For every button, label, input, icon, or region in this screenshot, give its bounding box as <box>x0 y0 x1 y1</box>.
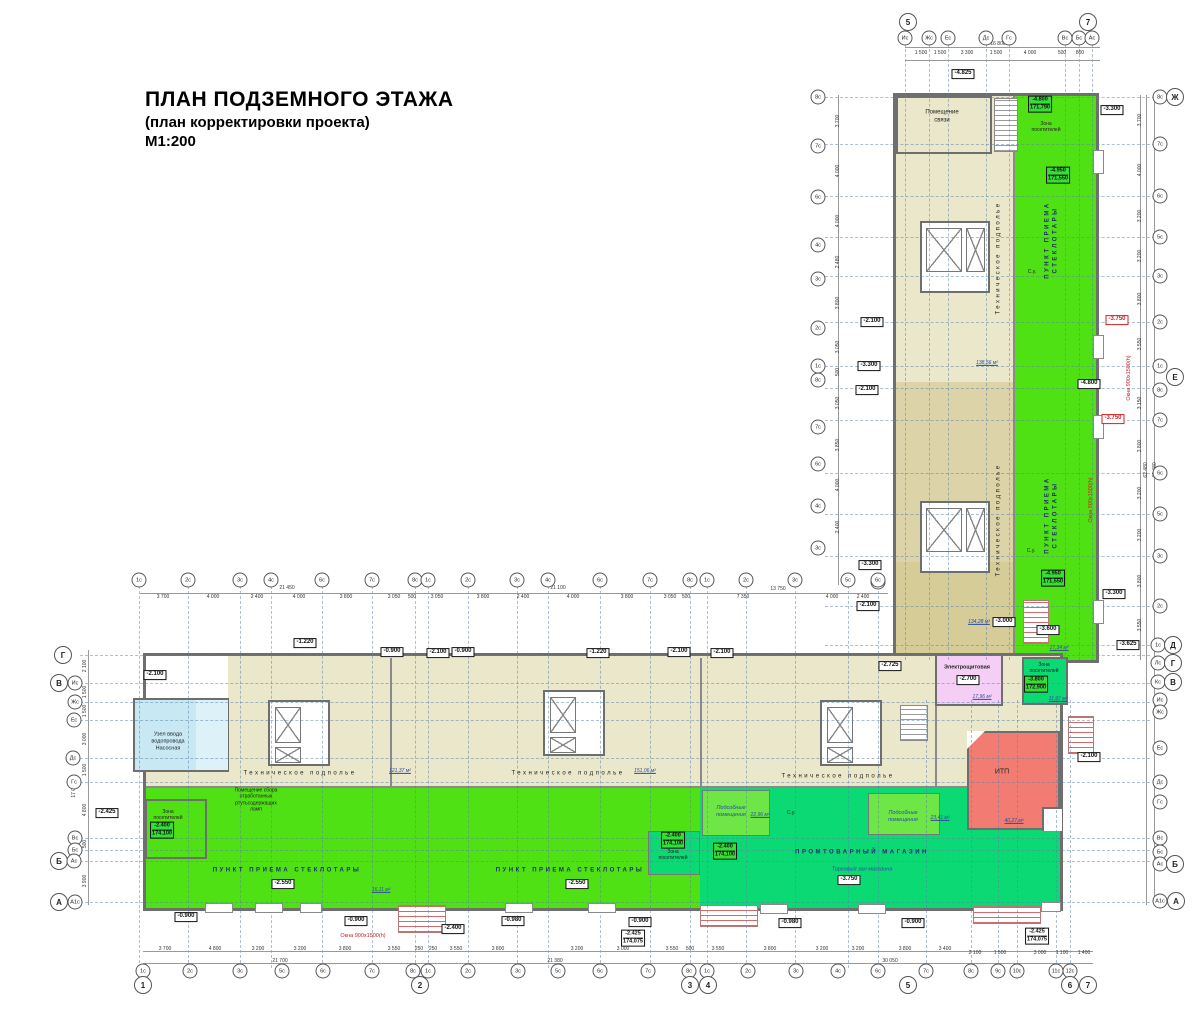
grid-bubble-Ас: Ас <box>1085 31 1100 46</box>
room-label: 11,97 м² <box>1049 696 1068 702</box>
dimension-text: 2 100 <box>969 950 982 956</box>
grid-bubble-Ес: Ес <box>941 31 956 46</box>
grid-bubble-Дс: Дс <box>66 751 81 766</box>
grid-bubble-1: 1 <box>134 976 152 994</box>
grid-axis-line <box>240 586 241 968</box>
grid-bubble-6с: 6с <box>871 573 886 588</box>
elevation-note: -2.700 <box>956 675 979 685</box>
elevation-value-box: -4.800171,790 <box>1028 96 1052 113</box>
grid-bubble-4: 4 <box>699 976 717 994</box>
room-label: 40,27 м² <box>1005 818 1024 824</box>
elevation-note: -2.100 <box>667 647 690 657</box>
grid-bubble-1с: 1с <box>700 573 715 588</box>
dimension-text: 3 800 <box>621 594 634 600</box>
dimension-text: 3 550 <box>1137 619 1143 632</box>
grid-axis-line <box>1017 700 1018 968</box>
elevation-note: -4.825 <box>951 69 974 79</box>
dimension-text: 2 480 <box>835 256 841 269</box>
elevation-note: -2.100 <box>710 648 733 658</box>
grid-bubble-Вс: Вс <box>1153 831 1168 846</box>
grid-axis-line <box>80 838 1150 839</box>
grid-bubble-8с: 8с <box>1153 383 1168 398</box>
elevator-cell <box>275 707 301 743</box>
room-label: Техническое подполье <box>243 770 356 778</box>
grid-bubble-5: 5 <box>899 976 917 994</box>
dimension-text: 1 500 <box>82 686 88 699</box>
grid-bubble-Жс: Жс <box>1153 705 1168 720</box>
window-opening <box>300 903 322 913</box>
room-label: 23,41 м² <box>931 815 950 821</box>
elevation-note: -2.550 <box>565 879 588 889</box>
elevation-note: -3.750 <box>837 875 860 885</box>
grid-axis-line <box>690 586 691 968</box>
dimension-text: 1 500 <box>82 764 88 777</box>
grid-axis-line <box>80 861 1150 862</box>
elevation-value-bottom: 171,550 <box>1043 578 1063 586</box>
elevation-note: -2.400 <box>441 924 464 934</box>
grid-axis-line <box>825 556 1155 557</box>
dimension-text: 3 800 <box>1137 575 1143 588</box>
grid-bubble-Е: Е <box>1166 368 1184 386</box>
grid-bubble-6с: 6с <box>1153 466 1168 481</box>
grid-bubble-7: 7 <box>1079 976 1097 994</box>
grid-axis-line <box>825 237 1155 238</box>
dimension-line <box>905 47 1100 48</box>
hwing-partition-band <box>146 786 1060 788</box>
elevation-note: -3.750 <box>1101 414 1124 424</box>
grid-axis-line <box>80 758 1150 759</box>
dimension-text: 3 800 <box>339 946 352 952</box>
window-opening <box>760 904 788 914</box>
dimension-text: 3 800 <box>899 946 912 952</box>
grid-bubble-2с: 2с <box>741 964 756 979</box>
grid-bubble-2с: 2с <box>461 964 476 979</box>
grid-axis-line <box>825 196 1155 197</box>
grid-bubble-Гс: Гс <box>67 775 82 790</box>
grid-bubble-В: В <box>1164 673 1182 691</box>
grid-axis-line <box>905 44 906 660</box>
grid-bubble-8с: 8с <box>811 90 826 105</box>
room-label: Помещение связи <box>925 110 958 125</box>
grid-bubble-Дс: Дс <box>1153 775 1168 790</box>
elevation-note: -0.900 <box>174 912 197 922</box>
grid-bubble-7с: 7с <box>643 573 658 588</box>
room-label: Зона посетителей <box>1029 662 1058 675</box>
dimension-text: 3 000 <box>82 733 88 746</box>
grid-axis-line <box>746 586 747 968</box>
dimension-text: 500 <box>682 594 690 600</box>
grid-axis-line <box>948 44 949 660</box>
elevation-value-bottom: 174,100 <box>152 830 172 838</box>
dimension-text: 3 200 <box>1137 529 1143 542</box>
grid-bubble-Ас: Ас <box>67 854 82 869</box>
grid-bubble-2с: 2с <box>739 573 754 588</box>
stairs-entrance-3 <box>973 906 1041 924</box>
room-label: Техническое подполье <box>781 773 894 781</box>
dimension-text: 500 <box>82 840 88 848</box>
grid-bubble-3с: 3с <box>510 573 525 588</box>
dimension-text: 4 000 <box>207 594 220 600</box>
hwing-partition-2 <box>700 658 702 786</box>
dimension-text: 3 050 <box>835 397 841 410</box>
elevation-value-top: -2.425 <box>1027 929 1047 936</box>
grid-axis-line <box>80 720 1150 721</box>
room-label: С.у. <box>787 810 795 816</box>
room-label: 134,28 м² <box>968 619 990 625</box>
dimension-text: 3 200 <box>1137 487 1143 500</box>
dimension-text: 800 <box>1076 50 1084 56</box>
elevation-note: -2.550 <box>271 879 294 889</box>
elevation-value-top: -2.400 <box>715 844 735 851</box>
grid-axis-line <box>1079 44 1080 660</box>
grid-axis-line <box>825 144 1155 145</box>
dimension-text: 4 000 <box>1024 50 1037 56</box>
window-note: Окна 900х1500(h) <box>1088 477 1094 522</box>
grid-axis-line <box>825 97 1155 98</box>
elevation-value-top: -4.950 <box>1043 571 1063 578</box>
room-label: Подсобные помещения <box>716 805 746 819</box>
grid-bubble-7: 7 <box>1079 13 1097 31</box>
room-label: Техническое подполье <box>995 201 1003 314</box>
grid-bubble-Д: Д <box>1164 636 1182 654</box>
grid-axis-line <box>971 700 972 968</box>
dimension-text: 250 <box>429 946 437 952</box>
dimension-text: 3 700 <box>1137 114 1143 127</box>
elevation-note: -2.100 <box>856 601 879 611</box>
room-label: 17,96 м² <box>973 694 992 700</box>
dimension-text: 3 400 <box>939 946 952 952</box>
elevation-note: -3.300 <box>858 560 881 570</box>
grid-axis-line <box>1056 700 1057 968</box>
grid-axis-line <box>415 586 416 968</box>
dimension-text: 250 <box>415 946 423 952</box>
elevation-value-bottom: 171,550 <box>1048 175 1068 183</box>
grid-bubble-3с: 3с <box>788 573 803 588</box>
dimension-text: 3 200 <box>252 946 265 952</box>
grid-bubble-3с: 3с <box>1153 549 1168 564</box>
room-label: 16,11 м² <box>372 887 391 893</box>
grid-bubble-7с: 7с <box>365 573 380 588</box>
stairs-entrance-2 <box>700 905 758 927</box>
grid-bubble-5с: 5с <box>551 964 566 979</box>
elevation-value-bottom: 171,790 <box>1030 104 1050 112</box>
room-label: Электрощитовая <box>944 665 990 672</box>
grid-axis-line <box>188 586 189 968</box>
elevation-value-box: -2.400174,100 <box>150 822 174 839</box>
grid-bubble-Гс: Гс <box>1002 31 1017 46</box>
dimension-text: 3 050 <box>664 594 677 600</box>
dimension-text: 4 000 <box>293 594 306 600</box>
room-label: Узел ввода водопровода Насосная <box>151 732 184 753</box>
dimension-text: 4 000 <box>1137 164 1143 177</box>
grid-bubble-10с: 10с <box>1010 964 1025 979</box>
dimension-text: 3 550 <box>1137 338 1143 351</box>
elevation-note: -3.300 <box>1100 105 1123 115</box>
grid-bubble-5с: 5с <box>1153 507 1168 522</box>
grid-bubble-А1с: А1с <box>1153 894 1168 909</box>
dimension-text: 3 550 <box>712 946 725 952</box>
title-line1: ПЛАН ПОДЗЕМНОГО ЭТАЖА <box>145 88 454 112</box>
dimension-text: 4 000 <box>826 594 839 600</box>
room-itp-step <box>1042 807 1062 831</box>
dimension-text: 3 050 <box>835 341 841 354</box>
dimension-text: 2 400 <box>857 594 870 600</box>
elevator-cell <box>275 747 301 763</box>
dimension-text: 62 480 <box>1143 462 1149 477</box>
elevator-cell <box>827 707 853 743</box>
grid-bubble-3с: 3с <box>1153 269 1168 284</box>
dimension-text: 1 400 <box>1078 950 1091 956</box>
window-opening <box>1093 150 1104 174</box>
grid-bubble-Ес: Ес <box>1153 741 1168 756</box>
grid-bubble-Дс: Дс <box>979 31 994 46</box>
grid-bubble-5: 5 <box>899 13 917 31</box>
grid-bubble-6с: 6с <box>811 457 826 472</box>
grid-bubble-Гс: Гс <box>1153 795 1168 810</box>
dimension-text: 3 700 <box>835 115 841 128</box>
grid-bubble-3с: 3с <box>789 964 804 979</box>
grid-bubble-4с: 4с <box>264 573 279 588</box>
elevation-note: -0.980 <box>778 918 801 928</box>
elevation-value-box: -3.800172,900 <box>1024 676 1048 693</box>
elevation-note: -2.100 <box>143 670 166 680</box>
grid-axis-line <box>80 702 1150 703</box>
elevation-note: -2.725 <box>878 661 901 671</box>
dimension-text: 2 100 <box>82 660 88 673</box>
room-label: 17,34 м² <box>1050 645 1069 651</box>
dimension-text: 3 200 <box>294 946 307 952</box>
grid-bubble-7с: 7с <box>641 964 656 979</box>
grid-axis-line <box>1009 44 1010 660</box>
dimension-text: 3 200 <box>852 946 865 952</box>
elevation-value-bottom: 174,075 <box>623 938 643 946</box>
grid-bubble-Вс: Вс <box>1058 31 1073 46</box>
hwing-partition-3 <box>935 706 937 786</box>
dimension-text: 3 550 <box>666 946 679 952</box>
elevation-value-top: -2.400 <box>152 823 172 830</box>
hwing-partition-1 <box>390 658 392 786</box>
grid-bubble-3с: 3с <box>233 964 248 979</box>
grid-bubble-8с: 8с <box>811 373 826 388</box>
title-line2: (план корректировки проекта) <box>145 114 454 131</box>
grid-bubble-7с: 7с <box>1153 137 1168 152</box>
grid-axis-line <box>1065 44 1066 660</box>
grid-axis-line <box>998 700 999 968</box>
window-opening <box>1093 335 1104 359</box>
elevator-cell <box>550 737 576 753</box>
grid-axis-line <box>1070 700 1071 968</box>
grid-bubble-2с: 2с <box>183 964 198 979</box>
room-water-inlet-annex <box>196 700 228 770</box>
dimension-text: 21 450 <box>279 585 294 591</box>
grid-bubble-Б: Б <box>1166 855 1184 873</box>
grid-bubble-4с: 4с <box>831 964 846 979</box>
grid-bubble-6с: 6с <box>593 573 608 588</box>
grid-bubble-6с: 6с <box>1153 189 1168 204</box>
room-label: Зона посетителей <box>658 849 687 862</box>
grid-bubble-1с: 1с <box>1153 359 1168 374</box>
elevation-note: -4.800 <box>1077 379 1100 389</box>
elevation-note: -3.300 <box>1102 589 1125 599</box>
grid-bubble-Ж: Ж <box>1166 88 1184 106</box>
dimension-text: 3 800 <box>492 946 505 952</box>
window-opening <box>858 904 886 914</box>
grid-bubble-Ис: Ис <box>68 676 83 691</box>
grid-bubble-5с: 5с <box>841 573 856 588</box>
dimension-text: 500 <box>686 946 694 952</box>
dimension-text: 4 800 <box>209 946 222 952</box>
dimension-text: 3 550 <box>450 946 463 952</box>
dimension-text: 4 000 <box>567 594 580 600</box>
grid-bubble-7с: 7с <box>365 964 380 979</box>
elevation-note: -2.100 <box>1077 752 1100 762</box>
room-label: Техническое подполье <box>995 463 1003 576</box>
dimension-text: 3 550 <box>388 946 401 952</box>
elevation-value-box: -4.950171,550 <box>1041 570 1065 587</box>
grid-bubble-Б: Б <box>50 852 68 870</box>
room-label: С.у. <box>1027 548 1035 554</box>
grid-axis-line <box>650 586 651 968</box>
room-label: ИТП <box>995 769 1009 778</box>
elevation-note: -0.900 <box>344 916 367 926</box>
elevation-value-bottom: 174,100 <box>663 840 683 848</box>
room-label: ПУНКТ ПРИЕМА СТЕКЛОТАРЫ <box>213 867 362 875</box>
grid-bubble-4с: 4с <box>811 499 826 514</box>
dimension-text: 3 800 <box>477 594 490 600</box>
dimension-text: 3 200 <box>1137 210 1143 223</box>
dimension-text: 3 700 <box>157 594 170 600</box>
elevation-value-top: -2.425 <box>623 931 643 938</box>
dimension-text: 4 800 <box>82 804 88 817</box>
elevation-value-bottom: 174,100 <box>715 851 735 859</box>
dimension-text: 1 500 <box>915 50 928 56</box>
window-note: Окна 900х1500(h) <box>1126 355 1132 400</box>
elevation-value-box: -2.400174,100 <box>661 832 685 849</box>
grid-bubble-2с: 2с <box>1153 315 1168 330</box>
room-label: 151,06 м² <box>634 768 656 774</box>
grid-bubble-А1с: А1с <box>68 895 83 910</box>
elevation-value-box: -2.425174,075 <box>1025 928 1049 945</box>
elevation-note: -0.980 <box>501 916 524 926</box>
grid-axis-line <box>428 586 429 968</box>
floor-plan: ПЛАН ПОДЗЕМНОГО ЭТАЖА (план корректировк… <box>0 0 1200 1009</box>
grid-axis-line <box>825 514 1155 515</box>
elevation-note: -0.900 <box>901 918 924 928</box>
room-label: Подсобные помещения <box>888 810 918 824</box>
dimension-text: 4 000 <box>835 165 841 178</box>
elevation-note: -0.900 <box>380 647 403 657</box>
room-label: Техническое подполье <box>511 770 624 778</box>
grid-bubble-Ис: Ис <box>898 31 913 46</box>
dimension-text: 7 350 <box>737 594 750 600</box>
grid-bubble-5с: 5с <box>275 964 290 979</box>
grid-axis-line <box>707 586 708 968</box>
elevation-note: -3.600 <box>1036 625 1059 635</box>
elevation-note: -2.100 <box>426 648 449 658</box>
grid-bubble-3с: 3с <box>811 272 826 287</box>
room-label: С.у. <box>1028 269 1036 275</box>
room-label: Зона посетителей <box>1031 121 1060 134</box>
dimension-text: 3 800 <box>835 297 841 310</box>
elevator-cell <box>926 228 962 272</box>
elevation-note: -3.750 <box>1105 315 1128 325</box>
dimension-text: 3 800 <box>764 946 777 952</box>
elevation-value-bottom: 172,900 <box>1026 684 1046 692</box>
grid-bubble-8с: 8с <box>964 964 979 979</box>
grid-bubble-8с: 8с <box>683 573 698 588</box>
dimension-text: 30 050 <box>882 958 897 964</box>
room-label: Зона посетителей <box>153 809 182 822</box>
dimension-text: 3 150 <box>1137 397 1143 410</box>
dimension-text: 2 400 <box>835 521 841 534</box>
room-label: ПУНКТ ПРИЕМА СТЕКЛОТАРЫ <box>496 867 645 875</box>
dimension-text: 3 050 <box>388 594 401 600</box>
stairs-entrance-1 <box>398 905 446 933</box>
window-note: Окна 900х1500(h) <box>340 933 385 939</box>
elevation-note: -3.300 <box>857 361 880 371</box>
elevation-value-box: -2.425174,075 <box>621 930 645 947</box>
grid-bubble-4с: 4с <box>811 238 826 253</box>
room-communications <box>896 96 992 154</box>
grid-axis-line <box>825 473 1155 474</box>
grid-bubble-3с: 3с <box>811 541 826 556</box>
dimension-text: 2 400 <box>251 594 264 600</box>
grid-bubble-6с: 6с <box>316 964 331 979</box>
grid-axis-line <box>825 645 1155 646</box>
room-label: ПУНКТ ПРИЕМА СТЕКЛОТАРЫ <box>1045 476 1060 553</box>
elevator-cell <box>966 228 985 272</box>
grid-axis-line <box>80 655 1150 656</box>
grid-bubble-2с: 2с <box>461 573 476 588</box>
grid-bubble-9с: 9с <box>991 964 1006 979</box>
grid-bubble-1с: 1с <box>132 573 147 588</box>
dimension-text: 3 850 <box>835 439 841 452</box>
window-opening <box>1093 600 1104 624</box>
room-label: 138,56 м² <box>976 360 998 366</box>
grid-axis-line <box>825 276 1155 277</box>
grid-bubble-3с: 3с <box>511 964 526 979</box>
window-opening <box>1041 902 1061 912</box>
room-label: ПРОМТОВАРНЫЙ МАГАЗИН <box>795 849 929 857</box>
grid-bubble-7с: 7с <box>919 964 934 979</box>
grid-axis-line <box>372 586 373 968</box>
grid-bubble-7с: 7с <box>811 139 826 154</box>
grid-bubble-1с: 1с <box>811 359 826 374</box>
grid-axis-line <box>80 850 1150 851</box>
dimension-text: 3 000 <box>617 946 630 952</box>
window-opening <box>505 903 533 913</box>
dimension-line <box>905 60 1100 61</box>
grid-bubble-3: 3 <box>681 976 699 994</box>
dimension-line <box>1146 95 1147 905</box>
grid-axis-line <box>468 586 469 968</box>
room-label: Помещение сбора отработанных ртутьсодерж… <box>235 788 278 813</box>
elevation-value-bottom: 174,075 <box>1027 936 1047 944</box>
grid-bubble-Жс: Жс <box>68 695 83 710</box>
grid-axis-line <box>80 683 1150 684</box>
grid-bubble-Ес: Ес <box>67 713 82 728</box>
dimension-text: 1 500 <box>934 50 947 56</box>
grid-bubble-2с: 2с <box>811 321 826 336</box>
room-itp-corner <box>967 731 985 749</box>
dimension-text: 2 400 <box>517 594 530 600</box>
grid-bubble-2: 2 <box>411 976 429 994</box>
grid-bubble-Г: Г <box>1164 654 1182 672</box>
stairs-right <box>1068 716 1094 754</box>
dimension-text: 1 500 <box>994 950 1007 956</box>
drawing-title: ПЛАН ПОДЗЕМНОГО ЭТАЖА (план корректировк… <box>145 88 454 150</box>
dimension-text: 3 000 <box>1034 950 1047 956</box>
